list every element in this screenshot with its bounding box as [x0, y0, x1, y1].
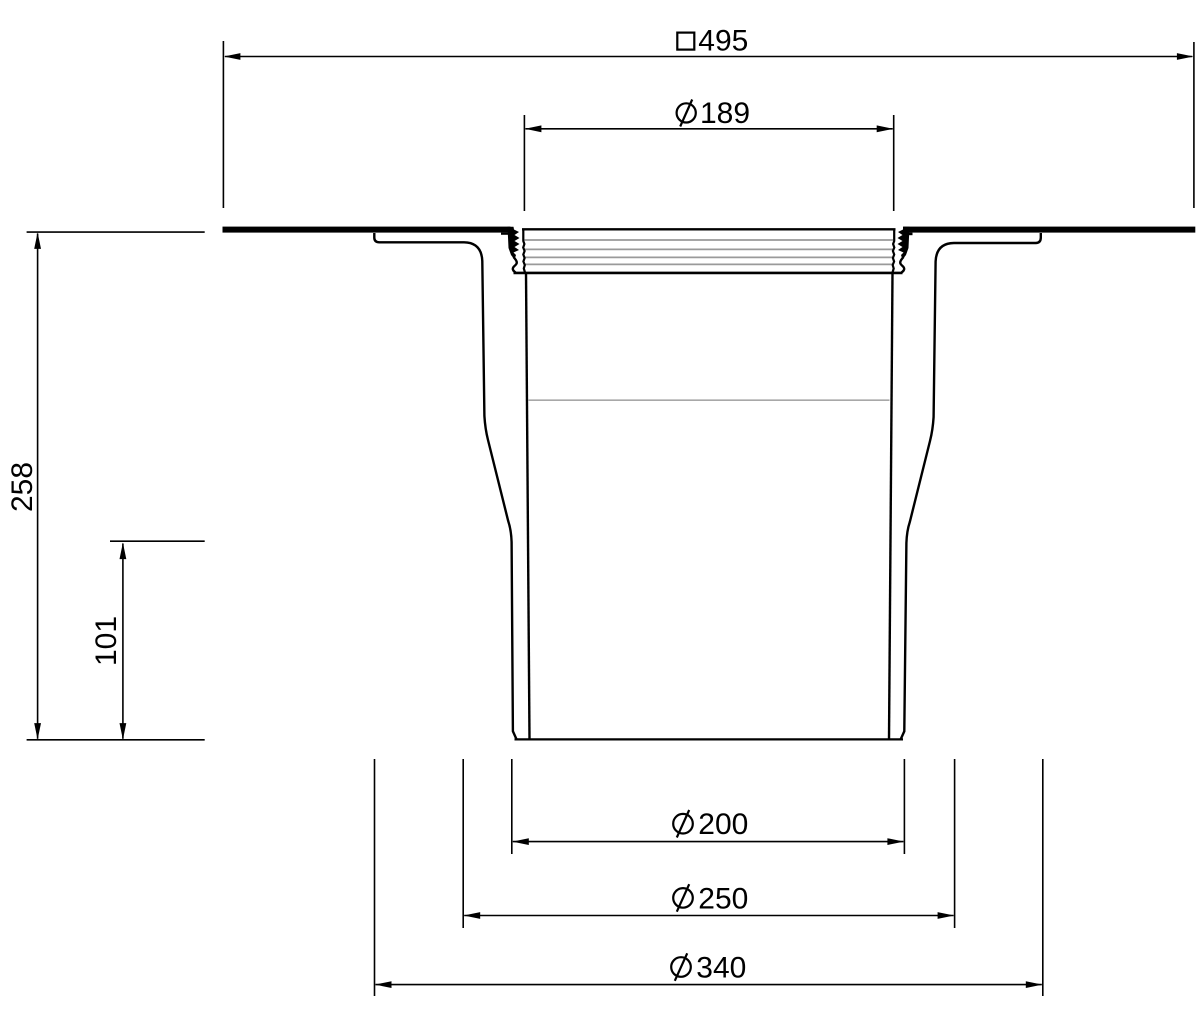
svg-text:101: 101: [90, 616, 123, 666]
svg-text:340: 340: [696, 952, 746, 985]
svg-text:189: 189: [700, 97, 750, 130]
svg-text:258: 258: [6, 462, 39, 512]
svg-text:200: 200: [698, 808, 748, 841]
svg-text:495: 495: [698, 25, 748, 58]
svg-text:250: 250: [698, 882, 748, 915]
